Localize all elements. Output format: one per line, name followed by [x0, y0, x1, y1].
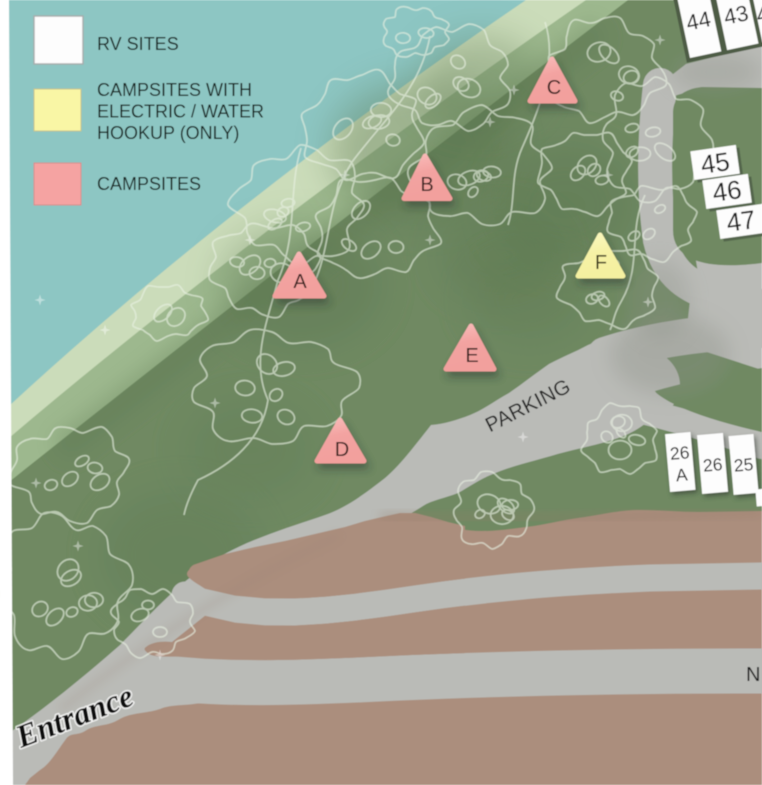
svg-text:26: 26: [702, 454, 723, 476]
svg-text:46: 46: [711, 174, 744, 208]
svg-text:45: 45: [699, 146, 732, 180]
svg-text:43: 43: [721, 0, 750, 30]
svg-text:ELECTRIC / WATER: ELECTRIC / WATER: [97, 102, 264, 122]
svg-text:N: N: [746, 664, 760, 686]
svg-text:A: A: [675, 464, 689, 485]
svg-text:47: 47: [725, 204, 758, 238]
svg-text:CAMPSITES: CAMPSITES: [97, 174, 201, 194]
svg-text:A: A: [293, 271, 307, 293]
svg-text:C: C: [547, 77, 561, 99]
svg-text:CAMPSITES WITH: CAMPSITES WITH: [97, 80, 252, 100]
svg-text:F: F: [595, 252, 607, 274]
svg-text:B: B: [420, 174, 433, 196]
svg-text:D: D: [335, 439, 349, 461]
svg-text:44: 44: [684, 6, 713, 36]
svg-text:E: E: [465, 345, 478, 367]
svg-text:26: 26: [669, 442, 690, 464]
svg-text:25: 25: [733, 454, 754, 476]
svg-text:RV SITES: RV SITES: [97, 34, 179, 54]
svg-text:HOOKUP (ONLY): HOOKUP (ONLY): [97, 123, 239, 143]
